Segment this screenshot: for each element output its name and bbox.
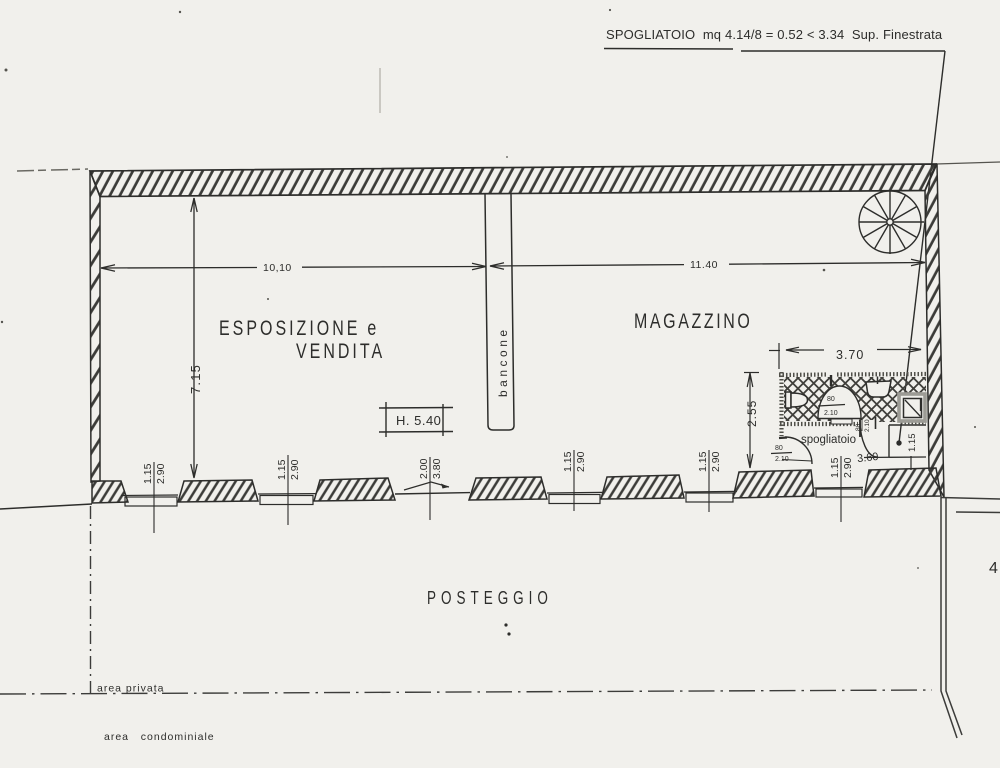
svg-text:POSTEGGIO: POSTEGGIO — [427, 588, 553, 608]
svg-text:1.15: 1.15 — [907, 434, 918, 453]
svg-text:1.15: 1.15 — [142, 463, 154, 484]
svg-text:80: 80 — [827, 396, 835, 403]
svg-text:2.90: 2.90 — [710, 451, 722, 472]
svg-text:1.15: 1.15 — [697, 451, 709, 472]
svg-text:7.15: 7.15 — [188, 364, 203, 394]
svg-text:80: 80 — [775, 445, 783, 452]
svg-text:3.80: 3.80 — [431, 458, 443, 479]
svg-text:3.70: 3.70 — [836, 348, 864, 362]
svg-text:10,10: 10,10 — [263, 262, 292, 274]
svg-text:2.10: 2.10 — [775, 456, 789, 463]
svg-text:11.40: 11.40 — [690, 259, 718, 271]
svg-text:2.00: 2.00 — [418, 458, 430, 479]
svg-text:H. 5.40: H. 5.40 — [396, 413, 441, 428]
svg-text:VENDITA: VENDITA — [296, 339, 385, 363]
svg-text:ESPOSIZIONEe: ESPOSIZIONEe — [219, 316, 379, 340]
svg-text:2.10: 2.10 — [824, 410, 838, 417]
svg-text:area privata: area privata — [97, 683, 164, 695]
svg-text:2.90: 2.90 — [289, 459, 301, 480]
svg-text:3.60: 3.60 — [857, 451, 880, 465]
svg-text:2.10: 2.10 — [864, 419, 871, 432]
svg-text:2.90: 2.90 — [155, 463, 167, 484]
svg-text:1.15: 1.15 — [276, 459, 288, 480]
svg-text:2.55: 2.55 — [745, 400, 759, 427]
svg-text:bancone: bancone — [496, 326, 510, 397]
svg-text:area condominiale: area condominiale — [104, 731, 215, 743]
svg-text:spogliatoio: spogliatoio — [801, 434, 856, 446]
svg-text:1.15: 1.15 — [562, 451, 574, 472]
svg-text:2.90: 2.90 — [842, 457, 854, 478]
svg-text:4: 4 — [989, 560, 998, 577]
svg-text:MAGAZZINO: MAGAZZINO — [634, 309, 752, 333]
svg-text:80: 80 — [855, 423, 862, 431]
svg-text:SPOGLIATOIO mq 4.14/8 = 0.52: SPOGLIATOIO mq 4.14/8 = 0.52 < 3.34 Sup.… — [606, 27, 943, 42]
svg-text:2.90: 2.90 — [575, 451, 587, 472]
svg-text:1.15: 1.15 — [829, 457, 841, 478]
